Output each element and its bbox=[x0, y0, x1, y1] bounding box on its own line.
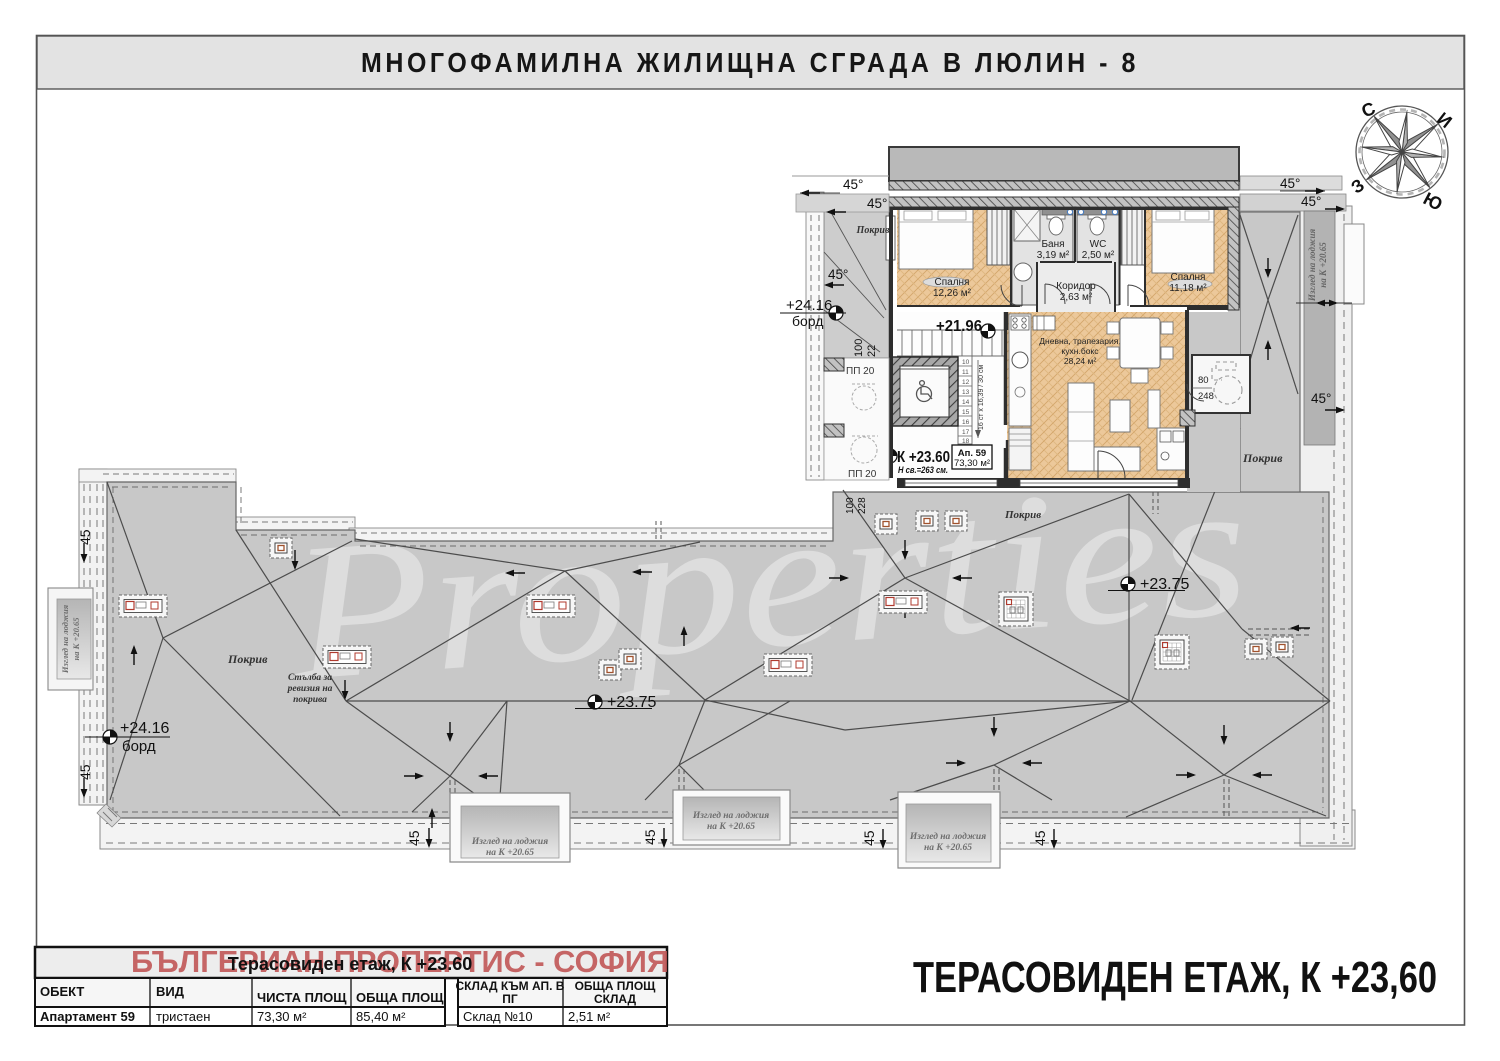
svg-text:тристаен: тристаен bbox=[156, 1009, 210, 1024]
svg-text:45°: 45° bbox=[843, 177, 863, 192]
svg-text:45°: 45° bbox=[828, 267, 848, 282]
svg-text:16: 16 bbox=[962, 419, 970, 426]
svg-text:МНОГОФАМИЛНА ЖИЛИЩНА СГРАДА В: МНОГОФАМИЛНА ЖИЛИЩНА СГРАДА В ЛЮЛИН - 8 bbox=[361, 47, 1139, 78]
svg-text:на К +20.65: на К +20.65 bbox=[486, 848, 534, 858]
svg-text:Спалня: Спалня bbox=[1171, 272, 1206, 283]
svg-text:+24.16: +24.16 bbox=[786, 297, 832, 314]
svg-text:2,51 м²: 2,51 м² bbox=[568, 1009, 611, 1024]
svg-text:73,30 м²: 73,30 м² bbox=[257, 1009, 307, 1024]
svg-text:16 ст х 16,39 / 30 см: 16 ст х 16,39 / 30 см bbox=[978, 365, 985, 430]
svg-text:45°: 45° bbox=[1280, 176, 1300, 191]
svg-text:Изглед на лоджия: Изглед на лоджия bbox=[909, 831, 986, 842]
svg-text:15: 15 bbox=[962, 409, 970, 416]
svg-text:12: 12 bbox=[962, 379, 970, 386]
svg-text:10: 10 bbox=[962, 359, 970, 366]
svg-text:Н св.=263 см.: Н св.=263 см. bbox=[898, 465, 948, 475]
svg-text:Изглед на лоджия: Изглед на лоджия bbox=[1307, 229, 1317, 303]
svg-text:17: 17 bbox=[962, 429, 970, 436]
svg-text:45: 45 bbox=[861, 830, 877, 846]
svg-text:Покрив: Покрив bbox=[856, 225, 890, 236]
svg-text:кухн.бокс: кухн.бокс bbox=[1061, 346, 1099, 356]
svg-text:на К +20.65: на К +20.65 bbox=[924, 843, 972, 853]
svg-text:3,19 м²: 3,19 м² bbox=[1037, 250, 1070, 261]
svg-text:ОБЩА ПЛОЩ: ОБЩА ПЛОЩ bbox=[356, 990, 444, 1005]
svg-text:45: 45 bbox=[406, 830, 422, 846]
svg-text:73,30 м²: 73,30 м² bbox=[954, 458, 990, 469]
svg-text:ТЕРАСОВИДЕН ЕТАЖ, К +23,60: ТЕРАСОВИДЕН ЕТАЖ, К +23,60 bbox=[913, 953, 1437, 1002]
svg-text:45: 45 bbox=[642, 829, 658, 845]
svg-text:ОБЕКТ: ОБЕКТ bbox=[40, 984, 84, 999]
svg-text:18: 18 bbox=[962, 438, 970, 445]
svg-text:+23.75: +23.75 bbox=[607, 694, 656, 711]
svg-text:45°: 45° bbox=[1301, 194, 1321, 209]
svg-text:на К +20.65: на К +20.65 bbox=[71, 617, 81, 661]
svg-text:45°: 45° bbox=[1311, 391, 1331, 406]
svg-text:ЧИСТА ПЛОЩ: ЧИСТА ПЛОЩ bbox=[257, 990, 347, 1005]
svg-text:ПП 20: ПП 20 bbox=[846, 366, 875, 377]
svg-text:покрива: покрива bbox=[293, 695, 327, 705]
svg-text:Изглед на лоджия: Изглед на лоджия bbox=[471, 836, 548, 847]
svg-text:22: 22 bbox=[866, 345, 878, 357]
svg-text:13: 13 bbox=[962, 389, 970, 396]
svg-text:Спалня: Спалня bbox=[935, 277, 970, 288]
svg-text:80: 80 bbox=[1198, 375, 1209, 386]
svg-text:Баня: Баня bbox=[1041, 239, 1064, 250]
svg-text:+23.75: +23.75 bbox=[1140, 576, 1189, 593]
svg-text:100: 100 bbox=[845, 497, 856, 514]
svg-text:Терасовиден етаж, К +23.60: Терасовиден етаж, К +23.60 bbox=[228, 954, 472, 974]
svg-text:85,40 м²: 85,40 м² bbox=[356, 1009, 406, 1024]
svg-text:на К +20.65: на К +20.65 bbox=[1318, 242, 1328, 288]
svg-text:11: 11 bbox=[962, 369, 969, 376]
svg-text:Склад №10: Склад №10 bbox=[463, 1009, 533, 1024]
svg-text:+21.96: +21.96 bbox=[936, 318, 982, 335]
svg-text:Апартамент 59: Апартамент 59 bbox=[40, 1009, 135, 1024]
svg-text:14: 14 bbox=[962, 399, 970, 406]
svg-text:К +23.60: К +23.60 bbox=[897, 449, 950, 466]
svg-text:228: 228 bbox=[857, 497, 868, 514]
svg-text:СКЛАД: СКЛАД bbox=[594, 992, 637, 1006]
svg-text:2,50 м²: 2,50 м² bbox=[1082, 250, 1115, 261]
svg-text:Дневна, трапезария,: Дневна, трапезария, bbox=[1039, 336, 1120, 346]
svg-text:WC: WC bbox=[1090, 239, 1107, 250]
svg-text:11,18 м²: 11,18 м² bbox=[1169, 283, 1207, 294]
svg-text:Покрив: Покрив bbox=[1004, 509, 1041, 521]
svg-text:Изглед на лоджия: Изглед на лоджия bbox=[692, 810, 769, 821]
svg-text:100: 100 bbox=[853, 339, 865, 357]
svg-text:Изглед на лоджия: Изглед на лоджия bbox=[60, 604, 70, 674]
svg-text:ОБЩА ПЛОЩ: ОБЩА ПЛОЩ bbox=[575, 979, 657, 993]
svg-text:Покрив: Покрив bbox=[227, 652, 268, 666]
svg-text:ревизия на: ревизия на bbox=[287, 684, 333, 694]
svg-text:28,24 м²: 28,24 м² bbox=[1064, 356, 1096, 366]
svg-text:ВИД: ВИД bbox=[156, 984, 185, 999]
svg-text:12,26 м²: 12,26 м² bbox=[933, 288, 972, 299]
svg-text:45: 45 bbox=[1032, 830, 1048, 846]
svg-text:борд: борд bbox=[122, 738, 156, 755]
svg-text:+24.16: +24.16 bbox=[120, 720, 169, 737]
svg-text:45: 45 bbox=[77, 764, 93, 780]
svg-text:на К +20.65: на К +20.65 bbox=[707, 822, 755, 832]
svg-text:45: 45 bbox=[77, 529, 93, 545]
svg-text:ПП 20: ПП 20 bbox=[848, 469, 877, 480]
svg-text:ПГ: ПГ bbox=[502, 992, 518, 1006]
svg-text:борд: борд bbox=[792, 313, 823, 329]
svg-text:Стълба за: Стълба за bbox=[288, 672, 332, 683]
svg-text:СКЛАД КЪМ АП. В: СКЛАД КЪМ АП. В bbox=[456, 979, 565, 993]
svg-text:45°: 45° bbox=[867, 196, 887, 211]
svg-text:Покрив: Покрив bbox=[1242, 451, 1283, 465]
